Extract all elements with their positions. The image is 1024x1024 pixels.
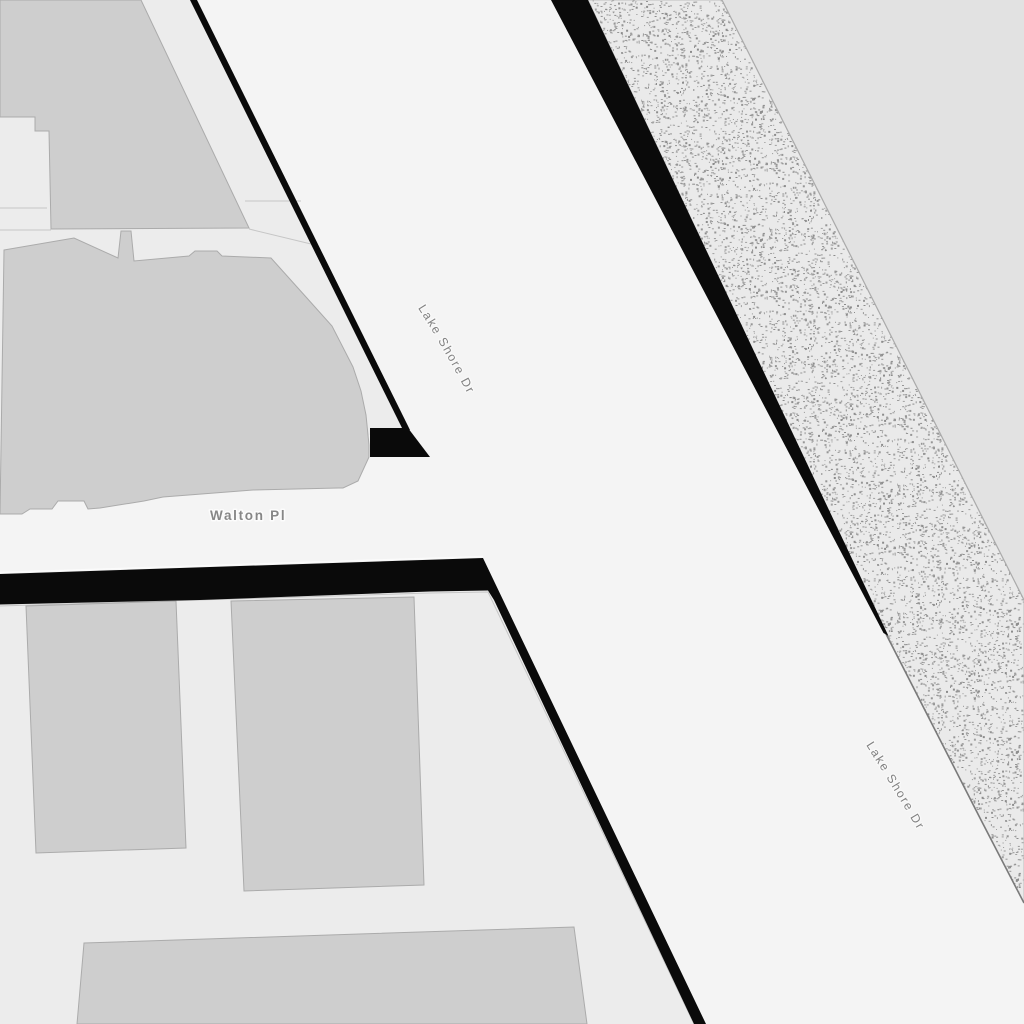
svg-text:Walton Pl: Walton Pl xyxy=(210,508,286,523)
